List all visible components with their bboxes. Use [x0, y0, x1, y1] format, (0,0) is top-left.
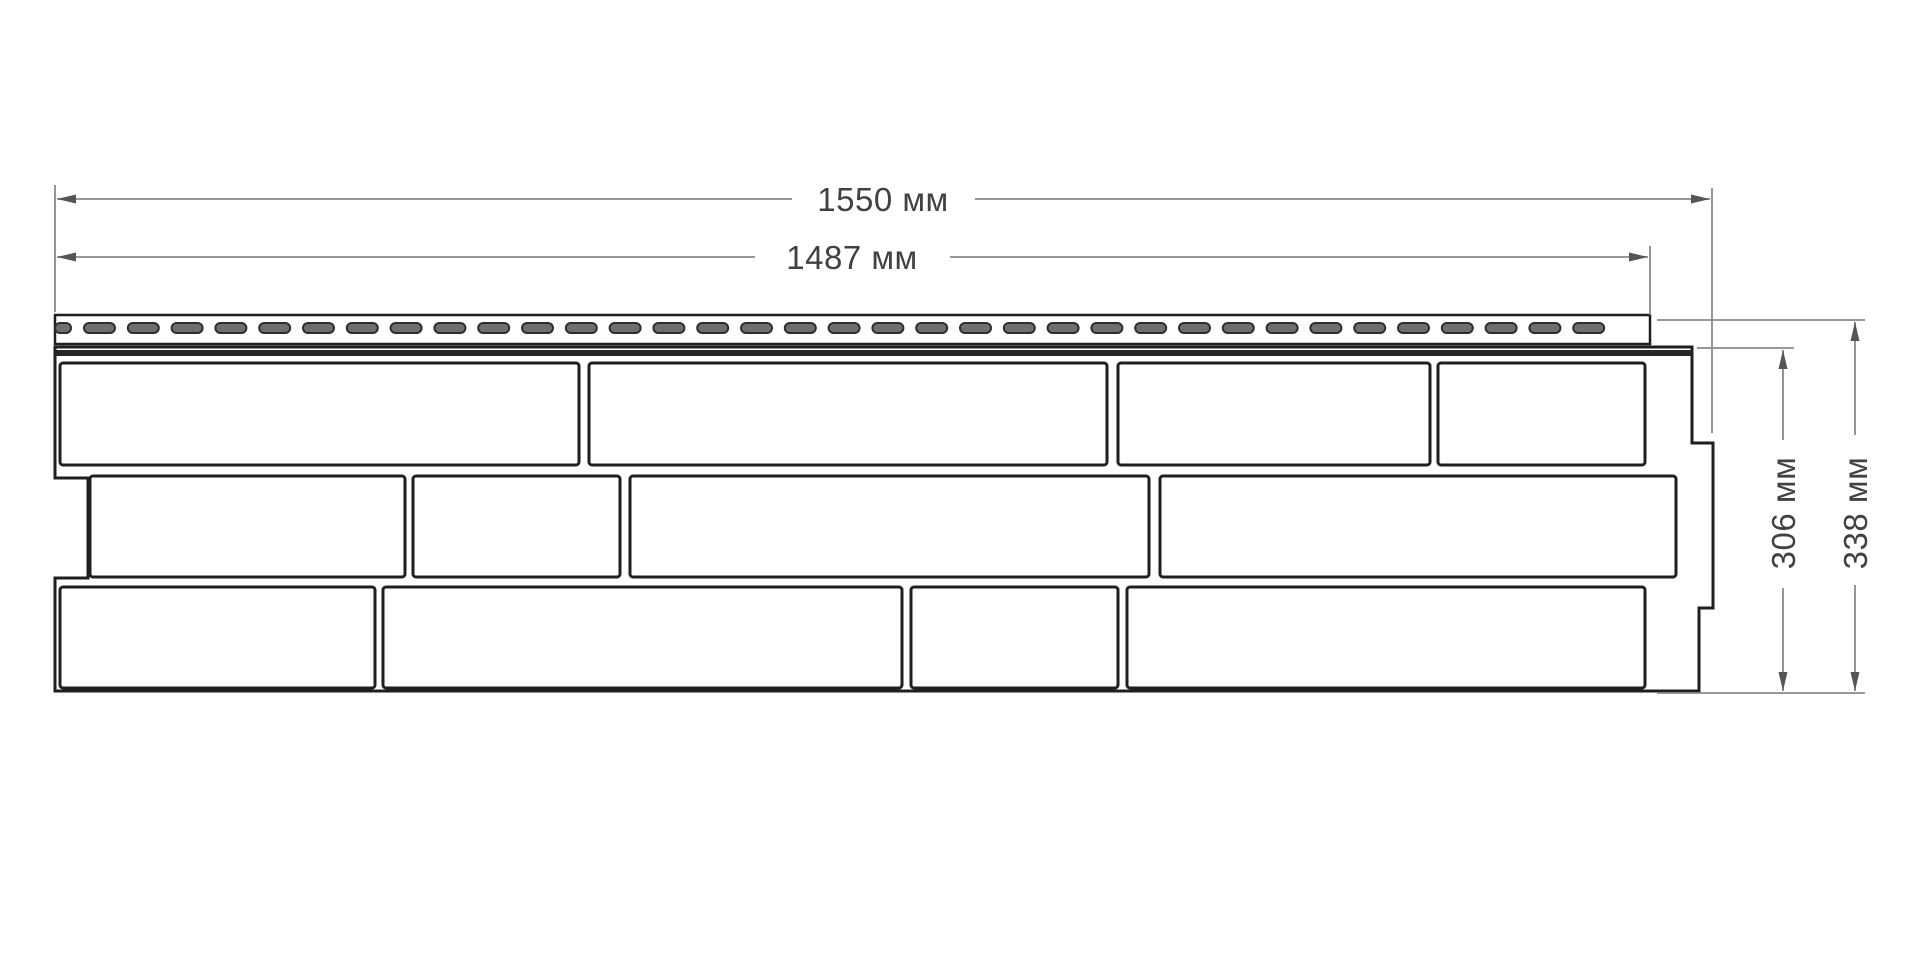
nail-slot: [1398, 323, 1429, 333]
brick-row2: [90, 476, 405, 577]
dim-label-height-working: 306 мм: [1765, 457, 1802, 570]
brick-row1: [589, 363, 1107, 465]
brick-row1: [1118, 363, 1430, 465]
dim-label-height-total: 338 мм: [1837, 457, 1874, 570]
nail-slot: [172, 323, 203, 333]
brick-row3: [911, 587, 1118, 688]
nail-slot: [478, 323, 509, 333]
brick-row1: [1438, 363, 1645, 465]
nail-slot: [1267, 323, 1298, 333]
nail-slot: [128, 323, 159, 333]
siding-panel: [55, 315, 1713, 691]
brick-row3: [60, 587, 375, 688]
dimension-width-total: 1550 мм: [57, 181, 1710, 218]
dimension-width-working: 1487 мм: [57, 239, 1648, 276]
nail-slot: [741, 323, 772, 333]
nail-slot: [1223, 323, 1254, 333]
nail-slot: [872, 323, 903, 333]
nail-slot: [522, 323, 553, 333]
drawing-canvas: 1550 мм1487 мм306 мм338 мм: [0, 0, 1920, 960]
nail-slot: [1442, 323, 1473, 333]
nail-slot: [55, 323, 71, 333]
brick-row3: [1127, 587, 1645, 688]
nail-slot: [303, 323, 334, 333]
dimension-height-total: 338 мм: [1837, 322, 1874, 691]
nail-slot: [1091, 323, 1122, 333]
nail-slot: [566, 323, 597, 333]
nail-slot: [391, 323, 422, 333]
nail-slot: [1179, 323, 1210, 333]
brick-row2: [1160, 476, 1676, 577]
nail-slot: [653, 323, 684, 333]
nail-slot: [916, 323, 947, 333]
nail-slot: [697, 323, 728, 333]
nail-slot: [215, 323, 246, 333]
panel-technical-drawing: 1550 мм1487 мм306 мм338 мм: [0, 0, 1920, 960]
nail-slot: [1354, 323, 1385, 333]
nail-slot: [785, 323, 816, 333]
brick-row3: [383, 587, 902, 688]
nail-slot: [84, 323, 115, 333]
dimension-height-working: 306 мм: [1765, 350, 1802, 691]
nail-slot: [347, 323, 378, 333]
nail-slot: [1135, 323, 1166, 333]
brick-row2: [413, 476, 620, 577]
brick-row1: [60, 363, 579, 465]
nail-slot: [259, 323, 290, 333]
nail-slot: [1486, 323, 1517, 333]
nail-slot: [610, 323, 641, 333]
dim-label-width-total: 1550 мм: [817, 181, 948, 218]
nail-slot: [1310, 323, 1341, 333]
nail-slot: [434, 323, 465, 333]
nail-slot: [829, 323, 860, 333]
nailing-strip: [55, 315, 1650, 344]
nail-slot: [1573, 323, 1604, 333]
nail-slot: [960, 323, 991, 333]
nail-slot: [1004, 323, 1035, 333]
nail-slot: [1048, 323, 1079, 333]
brick-row2: [630, 476, 1149, 577]
nail-slot: [1529, 323, 1560, 333]
dim-label-width-working: 1487 мм: [786, 239, 917, 276]
